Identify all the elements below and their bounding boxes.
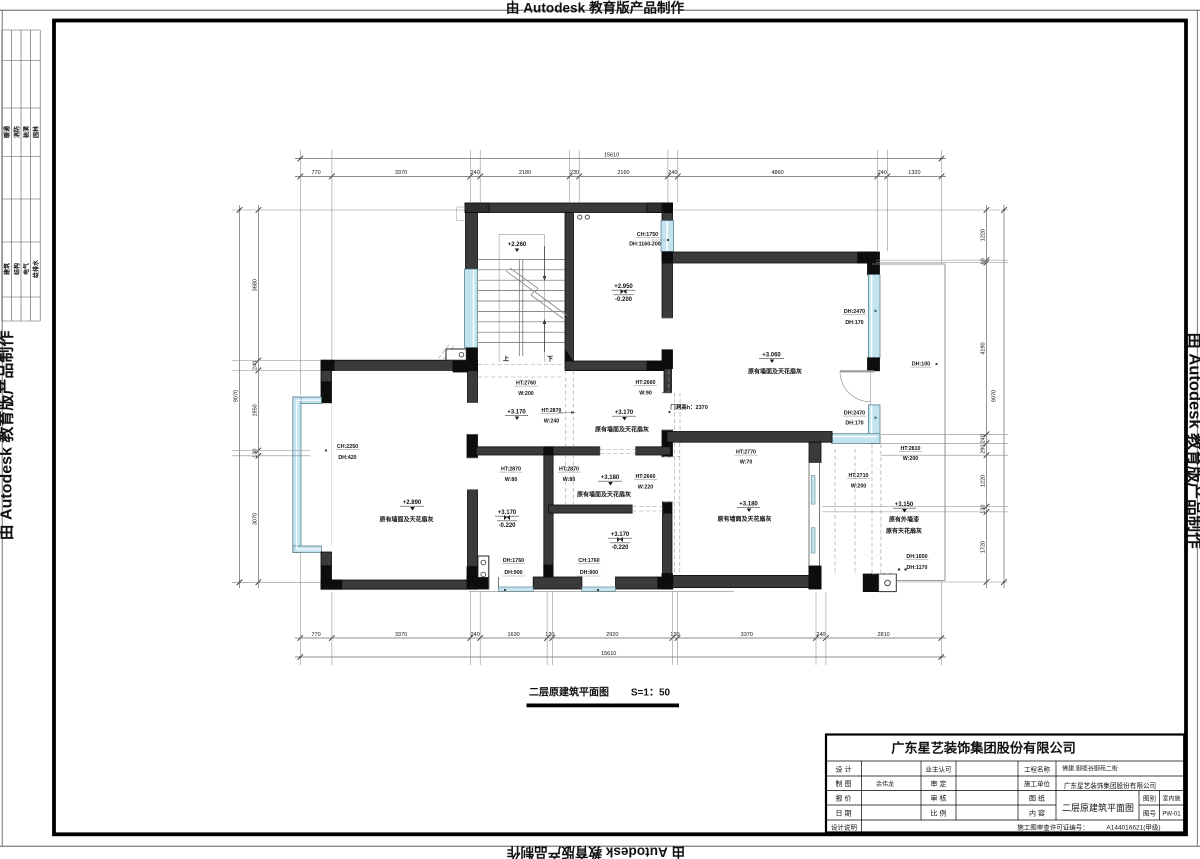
svg-text:-0.200: -0.200 (615, 297, 633, 303)
svg-text:DH:2470: DH:2470 (844, 309, 865, 315)
svg-text:240: 240 (668, 170, 677, 176)
svg-text:审 核: 审 核 (931, 794, 947, 803)
svg-text:由 Autodesk 教育版产品制作: 由 Autodesk 教育版产品制作 (506, 845, 685, 859)
svg-text:DH:2470: DH:2470 (844, 411, 865, 417)
svg-text:原有外墙漆: 原有外墙漆 (889, 516, 919, 524)
svg-text:130: 130 (980, 505, 986, 514)
svg-text:DH:900: DH:900 (580, 570, 598, 576)
svg-text:130: 130 (252, 449, 258, 458)
svg-text:DH:1760: DH:1760 (503, 558, 524, 564)
svg-text:2180: 2180 (519, 170, 531, 176)
svg-text:+3.060: +3.060 (762, 353, 781, 359)
svg-text:室内施: 室内施 (1162, 795, 1180, 803)
svg-text:130: 130 (670, 632, 679, 638)
svg-text:W:240: W:240 (544, 419, 560, 425)
svg-text:770: 770 (312, 170, 321, 176)
svg-text:图号: 图号 (1143, 810, 1157, 818)
svg-text:HT:2660: HT:2660 (635, 474, 655, 480)
svg-text:1720: 1720 (980, 541, 986, 553)
svg-text:广东星艺装饰集团股份有限公司: 广东星艺装饰集团股份有限公司 (891, 740, 1076, 756)
svg-text:HT:2760: HT:2760 (516, 381, 536, 387)
svg-text:+3.170: +3.170 (611, 532, 630, 538)
svg-text:施工单位: 施工单位 (1024, 779, 1051, 788)
svg-text:3070: 3070 (252, 513, 258, 525)
svg-text:HT:2770: HT:2770 (736, 450, 756, 456)
svg-text:由 Autodesk 教育版产品制作: 由 Autodesk 教育版产品制作 (506, 0, 685, 16)
svg-text:240: 240 (980, 434, 986, 443)
svg-text:原有墙面及天花扇灰: 原有墙面及天花扇灰 (717, 515, 771, 523)
svg-text:240: 240 (816, 632, 825, 638)
svg-text:内 容: 内 容 (1029, 809, 1045, 818)
svg-text:15610: 15610 (604, 152, 619, 158)
svg-text:设计说明: 设计说明 (831, 823, 858, 832)
svg-text:DH:1160-200: DH:1160-200 (629, 242, 661, 248)
svg-text:CH:1750: CH:1750 (637, 232, 658, 238)
svg-text:4190: 4190 (980, 342, 986, 354)
svg-text:W:200: W:200 (851, 484, 867, 490)
svg-text:下: 下 (547, 356, 553, 363)
svg-text:HT:2870: HT:2870 (559, 467, 579, 473)
svg-text:HT:2660: HT:2660 (635, 380, 655, 386)
svg-text:原有墙面及天花扇灰: 原有墙面及天花扇灰 (577, 491, 631, 499)
svg-text:1220: 1220 (980, 229, 986, 241)
svg-text:60: 60 (980, 258, 986, 264)
svg-text:1630: 1630 (507, 632, 519, 638)
svg-text:比 例: 比 例 (931, 809, 947, 818)
svg-text:HT:2810: HT:2810 (900, 446, 920, 452)
svg-text:原有墙面及天花扇灰: 原有墙面及天花扇灰 (748, 368, 802, 376)
svg-text:制 图: 制 图 (836, 779, 852, 788)
svg-text:DH:170: DH:170 (845, 421, 863, 427)
svg-text:+3.170: +3.170 (507, 410, 526, 416)
svg-text:图 纸: 图 纸 (1029, 794, 1045, 803)
svg-text:PW-01: PW-01 (1162, 812, 1181, 818)
svg-text:A144016621(甲级): A144016621(甲级) (1106, 823, 1160, 832)
svg-text:2920: 2920 (606, 632, 618, 638)
svg-text:+3.180: +3.180 (739, 502, 758, 508)
svg-text:+3.170: +3.170 (615, 410, 634, 416)
svg-text:施工图审查许可证编号：: 施工图审查许可证编号： (1017, 823, 1089, 832)
svg-text:佛建.御揽谷御苑二街: 佛建.御揽谷御苑二街 (1062, 765, 1118, 773)
svg-text:290: 290 (980, 445, 986, 454)
svg-text:由 Autodesk 教育版产品制作: 由 Autodesk 教育版产品制作 (0, 331, 16, 541)
svg-text:W:200: W:200 (903, 456, 919, 462)
svg-text:4860: 4860 (771, 170, 783, 176)
svg-text:1220: 1220 (980, 475, 986, 487)
svg-text:9070: 9070 (992, 390, 998, 402)
svg-text:W:80: W:80 (505, 477, 518, 483)
svg-text:CH:1760: CH:1760 (578, 558, 599, 564)
svg-text:770: 770 (312, 632, 321, 638)
svg-text:消防: 消防 (13, 126, 21, 138)
svg-text:审 定: 审 定 (931, 779, 947, 788)
svg-text:结构: 结构 (13, 263, 21, 275)
svg-text:给排水: 给排水 (32, 259, 40, 278)
svg-text:1320: 1320 (908, 170, 920, 176)
svg-text:+3.180: +3.180 (601, 475, 620, 481)
svg-text:日 期: 日 期 (836, 810, 852, 818)
svg-text:+3.170: +3.170 (498, 510, 517, 516)
svg-text:装潢: 装潢 (22, 126, 30, 139)
svg-text:-0.220: -0.220 (611, 545, 629, 551)
svg-text:HT:2870: HT:2870 (541, 408, 561, 414)
svg-text:3680: 3680 (252, 279, 258, 291)
svg-text:2160: 2160 (617, 170, 629, 176)
svg-text:上: 上 (503, 355, 509, 363)
svg-text:+2.890: +2.890 (403, 500, 422, 506)
svg-text:设 计: 设 计 (836, 765, 852, 774)
svg-text:9070: 9070 (233, 390, 239, 402)
svg-text:DH:1170: DH:1170 (907, 565, 928, 571)
svg-text:1950: 1950 (252, 404, 258, 416)
svg-text:-0.220: -0.220 (498, 523, 516, 529)
svg-text:原有天花扇灰: 原有天花扇灰 (886, 527, 922, 535)
svg-text:报 价: 报 价 (836, 794, 852, 803)
svg-text:S=1：50: S=1：50 (631, 688, 671, 699)
svg-text:二层原建筑平面图: 二层原建筑平面图 (1062, 802, 1134, 813)
svg-text:230: 230 (570, 170, 579, 176)
svg-text:原有墙面及天花扇灰: 原有墙面及天花扇灰 (379, 516, 433, 524)
svg-text:业主认可: 业主认可 (926, 765, 953, 774)
svg-text:15610: 15610 (601, 651, 616, 657)
svg-text:3370: 3370 (395, 170, 407, 176)
svg-text:暖通: 暖通 (3, 126, 11, 138)
svg-text:HT:2710: HT:2710 (848, 473, 868, 479)
svg-text:3370: 3370 (395, 632, 407, 638)
svg-text:建筑: 建筑 (3, 263, 11, 275)
svg-text:HT:2870: HT:2870 (501, 467, 521, 473)
svg-text:原有墙面及天花扇灰: 原有墙面及天花扇灰 (595, 426, 649, 434)
svg-text:2810: 2810 (877, 632, 889, 638)
svg-text:CH:2250: CH:2250 (337, 444, 358, 450)
svg-text:工程名称: 工程名称 (1024, 765, 1051, 774)
svg-text:240: 240 (471, 632, 480, 638)
svg-text:130: 130 (545, 632, 554, 638)
svg-text:园林: 园林 (32, 126, 40, 138)
svg-text:图别: 图别 (1143, 794, 1156, 803)
svg-text:余伟龙: 余伟龙 (876, 780, 894, 788)
svg-text:240: 240 (878, 170, 887, 176)
svg-text:W:90: W:90 (639, 391, 652, 397)
svg-text:240: 240 (471, 170, 480, 176)
svg-text:+3.150: +3.150 (895, 502, 914, 508)
svg-text:DH:100: DH:100 (912, 362, 930, 368)
svg-text:W:220: W:220 (638, 485, 654, 491)
svg-text:+2.260: +2.260 (508, 242, 527, 248)
svg-text:DH:900: DH:900 (504, 570, 522, 576)
svg-text:240: 240 (252, 361, 258, 370)
svg-text:DH:170: DH:170 (845, 320, 863, 326)
svg-text:门洞高h：2370: 门洞高h：2370 (670, 403, 708, 411)
svg-text:广东星艺装饰集团股份有限公司: 广东星艺装饰集团股份有限公司 (1064, 781, 1156, 790)
svg-text:DH:420: DH:420 (338, 455, 356, 461)
svg-text:二层原建筑平面图: 二层原建筑平面图 (529, 686, 609, 699)
svg-text:W:200: W:200 (518, 391, 534, 397)
svg-text:电气: 电气 (22, 263, 30, 275)
svg-text:+2.950: +2.950 (614, 284, 633, 290)
svg-text:DH:1650: DH:1650 (906, 554, 927, 560)
svg-text:W:80: W:80 (563, 477, 576, 483)
svg-text:W:70: W:70 (740, 460, 753, 466)
svg-text:3370: 3370 (741, 632, 753, 638)
